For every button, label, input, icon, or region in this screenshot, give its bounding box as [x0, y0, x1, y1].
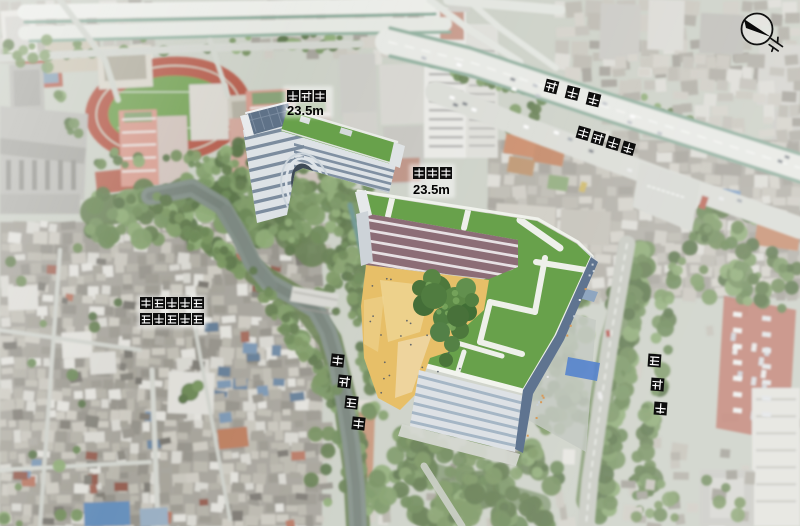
svg-text:23.5m: 23.5m [413, 182, 450, 197]
svg-text:23.5m: 23.5m [287, 103, 324, 118]
